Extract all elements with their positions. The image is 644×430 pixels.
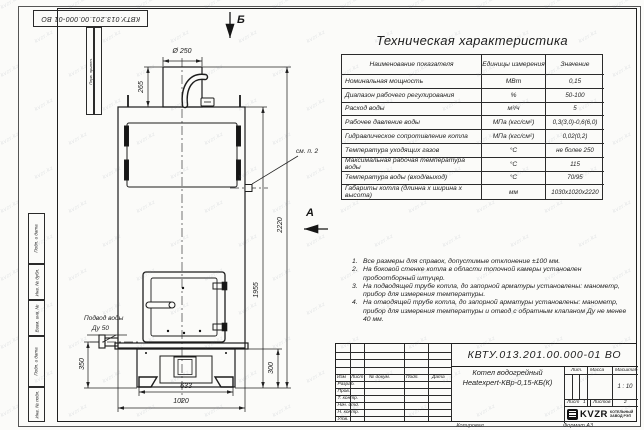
spec-row-value: 0,15 — [546, 75, 604, 89]
spec-row-value: 70/95 — [546, 172, 604, 186]
dim-body-height: 1955 — [252, 276, 262, 304]
tb-product-line1: Котел водогрейный — [451, 368, 564, 378]
spec-row-name: Диапазон рабочего регулирования — [342, 89, 482, 103]
spec-header-value: Значение — [546, 55, 604, 75]
spec-section: Техническая характеристика Наименование … — [341, 33, 603, 200]
tb-product-line2: Heatexpert-КВр-0,15-КБ(К) — [451, 378, 564, 388]
spec-row-name: Расход воды — [342, 103, 482, 117]
tb-col-list: Лист — [351, 375, 363, 380]
title-block: Изм Лист № докум. Подп. Дата Разраб. Про… — [335, 343, 637, 422]
tb-sheets-value: 2 — [624, 400, 627, 405]
dim-base-height: 300 — [267, 357, 277, 379]
tb-col-izm: Изм — [337, 375, 346, 380]
tb-mass-label: Масса — [590, 368, 604, 373]
spec-row-name: Рабочее давление воды — [342, 116, 482, 130]
spec-title: Техническая характеристика — [341, 33, 603, 50]
spec-row-name: Гидравлическое сопротивление котла — [342, 130, 482, 144]
dim-feet-width: 633 — [171, 382, 201, 391]
footer-format: Формат А3 — [548, 423, 608, 429]
tb-doc-number: КВТУ.013.201.00.000-01 ВО — [451, 344, 638, 367]
tb-row-utv: Утв. — [338, 417, 349, 422]
tb-lit-label: Лит. — [571, 368, 582, 373]
tb-col-docnum: № докум. — [369, 375, 390, 380]
tb-sheets-label: Листов — [593, 400, 610, 405]
furnace-door — [143, 272, 227, 342]
water-inlet-label: Подвод воды — [84, 315, 123, 322]
boiler-body — [115, 107, 248, 349]
dim-chimney-height: 265 — [137, 76, 147, 98]
spec-row-unit: МВт — [482, 75, 546, 89]
logo-icon — [567, 409, 578, 420]
note-text: На отводящей трубе котла, до запорной ар… — [363, 299, 635, 324]
view-label-a: А — [306, 207, 314, 219]
upper-door — [125, 123, 241, 187]
tb-product-name: Котел водогрейный Heatexpert-КВр-0,15-КБ… — [451, 368, 564, 398]
tb-row-prov: Пров. — [338, 389, 351, 394]
note-item: 3.На подводящей трубе котла, до запорной… — [352, 283, 635, 300]
spec-row-name: Габариты котла (длинна х ширина х высота… — [342, 185, 482, 199]
door-hinge-bottom — [213, 324, 223, 330]
water-inlet-stub — [99, 335, 118, 348]
spec-row-unit: °С — [482, 144, 546, 158]
door-hinge-top — [213, 283, 223, 289]
drawing-sheet: КВТУ.013.201.00.000-01 ВО Перв. примен. … — [0, 0, 644, 430]
dim-chimney-diameter: Ø 250 — [162, 47, 202, 56]
dim-overall-height: 2220 — [276, 211, 286, 239]
dim-inlet-height: 350 — [78, 353, 88, 375]
spec-header-name: Наименование показателя — [342, 55, 482, 75]
spec-row-value: 5 — [546, 103, 604, 117]
tb-row-nachotd: Нач. отд. — [338, 403, 360, 408]
spec-row-unit: мм — [482, 185, 546, 199]
foot-left — [139, 377, 157, 387]
spec-row-value: 0,3(3,0)-0,6(6,0) — [546, 116, 604, 130]
side-fitting — [245, 185, 252, 192]
spec-row-unit: °С — [482, 172, 546, 186]
spec-table: Наименование показателя Единицы измерени… — [341, 54, 603, 200]
note-text: На подводящей трубе котла, до запорной а… — [363, 283, 635, 300]
note-text: На боковой стенке котла в области топочн… — [363, 266, 635, 283]
spec-row-value: 1030х1020х2220 — [546, 185, 604, 199]
dim-body-width: 1020 — [163, 397, 199, 406]
logo-caption: КОТЕЛЬНЫЙ ЗАВОД РЭП — [610, 410, 633, 418]
spec-row-value: 115 — [546, 158, 604, 172]
view-label-b: Б — [237, 14, 245, 26]
company-logo: KVZR КОТЕЛЬНЫЙ ЗАВОД РЭП — [565, 406, 639, 422]
spec-row-value: не более 250 — [546, 144, 604, 158]
foot-right — [215, 377, 233, 387]
ash-hatch — [174, 357, 196, 377]
spec-row-name: Температура уходящих газов — [342, 144, 482, 158]
note-item: 2.На боковой стенке котла в области топо… — [352, 266, 635, 283]
tb-col-data: Дата — [432, 375, 445, 380]
callout-see-note-2: см. п. 2 — [296, 148, 318, 155]
damper-handle — [185, 77, 214, 106]
spec-row-unit: °С — [482, 158, 546, 172]
logo-brand: KVZR — [580, 409, 608, 420]
spec-header-units: Единицы измерения — [482, 55, 546, 75]
spec-row-unit: МПа (кгс/см²) — [482, 116, 546, 130]
spec-row-unit: м³/ч — [482, 103, 546, 117]
spec-row-name: Температура воды (вход/выход) — [342, 172, 482, 186]
note-item: 4.На отводящей трубе котла, до запорной … — [352, 299, 635, 324]
tb-col-podp: Подп. — [406, 375, 419, 380]
spec-row-value: 50-100 — [546, 89, 604, 103]
tb-scale-label: Масштаб — [615, 368, 637, 373]
water-inlet-dn-label: Ду 50 — [92, 325, 109, 332]
tb-row-tkontr: Т. контр. — [338, 396, 359, 401]
spec-row-unit: % — [482, 89, 546, 103]
footer-copied: Копировал — [440, 423, 500, 429]
notes: 1.Все размеры для справок, допустимые от… — [352, 258, 635, 324]
centerlines — [90, 58, 268, 402]
tb-row-nkontr: Н. контр. — [338, 410, 360, 415]
spec-row-name: Номинальная мощность — [342, 75, 482, 89]
tb-sheet-label: Лист — [567, 400, 579, 405]
spec-row-unit: МПа (кгс/см²) — [482, 130, 546, 144]
spec-row-name: Максимальная рабочая температура воды — [342, 158, 482, 172]
tb-scale-value: 1 : 10 — [612, 374, 638, 399]
spec-row-value: 0,02(0,2) — [546, 130, 604, 144]
dimension-lines — [84, 57, 298, 412]
tb-sheet-value: 1 — [583, 400, 586, 405]
tb-row-razrab: Разраб. — [338, 382, 355, 387]
